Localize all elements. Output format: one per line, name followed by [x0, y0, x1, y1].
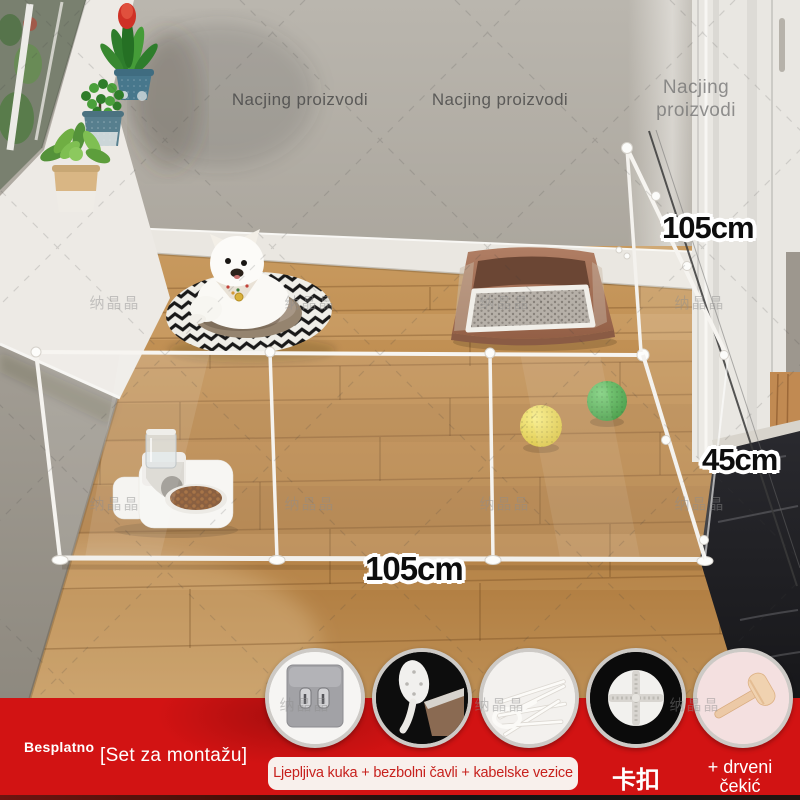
cn-watermark: 纳晶晶 [645, 493, 755, 514]
cn-watermark: 纳晶晶 [250, 694, 360, 715]
brand-watermark: Nacjing proizvodi [225, 90, 375, 110]
hammer-label-line2: čekić [690, 777, 790, 796]
cn-watermark: 纳晶晶 [640, 694, 750, 715]
brand-watermark: Nacjing proizvodi [648, 76, 744, 122]
cn-watermark: 纳晶晶 [60, 493, 170, 514]
cn-watermark: 纳晶晶 [450, 493, 560, 514]
dim-label-fence-length: 105cm [365, 550, 463, 588]
included-items-strip: Ljepljiva kuka + bezbolni čavli + kabels… [268, 757, 578, 790]
cn-watermark: 纳晶晶 [645, 292, 755, 313]
cn-watermark: 纳晶晶 [60, 292, 170, 313]
cn-watermark: 纳晶晶 [450, 292, 560, 313]
hammer-label-line1: + drveni [690, 758, 790, 777]
banner-bottom-strip [0, 795, 800, 800]
cn-watermark: 纳晶晶 [445, 694, 555, 715]
door-handle [779, 18, 785, 72]
cn-watermark: 纳晶晶 [255, 493, 365, 514]
free-label: Besplatno [24, 739, 94, 755]
brand-watermark: Nacjing proizvodi [425, 90, 575, 110]
dog-eye [225, 258, 231, 264]
buckle-label: 卡扣 [588, 760, 684, 795]
dim-label-gate-height: 105cm [662, 210, 754, 246]
dim-label-fence-height: 45cm [702, 442, 777, 478]
hammer-label: + drveni čekić [690, 758, 790, 796]
fence-front [31, 347, 713, 568]
product-image: Nacjing proizvodi Nacjing proizvodi Nacj… [0, 0, 800, 800]
dog-eye [241, 260, 247, 266]
cn-watermark: 纳晶晶 [255, 292, 365, 313]
set-label: [Set za montažu] [100, 745, 247, 767]
